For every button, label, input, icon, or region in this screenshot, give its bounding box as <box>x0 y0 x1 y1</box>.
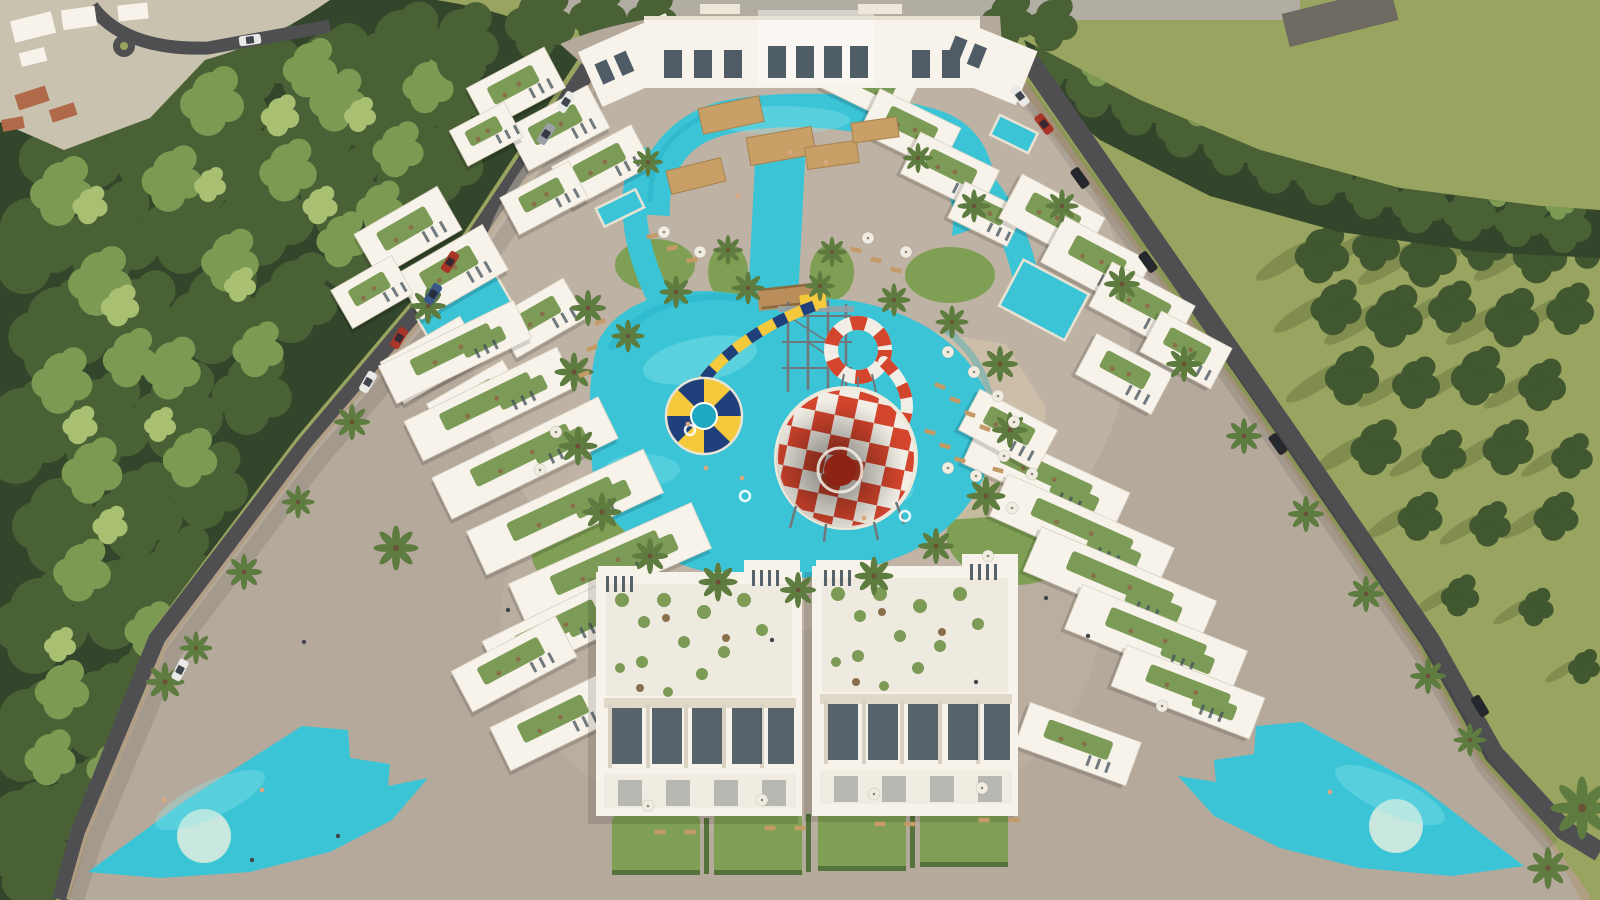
swimmer <box>686 422 691 427</box>
tower-slit <box>606 576 609 592</box>
sun-umbrella <box>968 366 980 378</box>
column <box>900 700 904 764</box>
tower-slit <box>622 576 625 592</box>
column <box>862 700 866 764</box>
palm-tree <box>1104 266 1140 302</box>
swimmer <box>162 798 167 803</box>
shrub <box>912 662 924 674</box>
sun-umbrella <box>756 794 768 806</box>
pedestrian <box>974 680 978 684</box>
palm-tree <box>982 346 1018 382</box>
window <box>692 708 722 764</box>
window <box>694 50 712 78</box>
palm-tree <box>282 486 315 519</box>
tower-slit <box>776 570 779 586</box>
lazy-river-channel <box>748 142 806 300</box>
sun-umbrella <box>658 226 670 238</box>
table <box>852 678 860 686</box>
roof-unit <box>858 4 902 14</box>
column <box>608 704 612 768</box>
column <box>938 700 942 764</box>
shrub <box>854 610 866 622</box>
swimmer <box>736 194 741 199</box>
sun-umbrella <box>862 232 874 244</box>
funnel-throat <box>691 403 717 429</box>
window <box>732 708 762 764</box>
palm-tree <box>958 190 991 223</box>
palm-tree <box>1166 346 1202 382</box>
tower-slit <box>978 564 981 580</box>
pedestrian <box>770 638 774 642</box>
window <box>724 50 742 78</box>
palm-tree <box>805 271 835 301</box>
hedge <box>806 814 811 872</box>
window <box>948 704 978 760</box>
sun-umbrella <box>900 246 912 258</box>
tower-slit <box>630 576 633 592</box>
window <box>908 704 938 760</box>
sun-lounger <box>905 822 916 827</box>
hedge <box>704 818 709 874</box>
palm-tree <box>633 147 663 177</box>
balcony-band <box>604 698 796 708</box>
shrub <box>615 593 629 607</box>
garden <box>905 247 995 303</box>
palm-tree <box>374 526 419 571</box>
sun-lounger <box>875 822 886 827</box>
table <box>722 634 730 642</box>
front-lawn <box>612 816 700 874</box>
swimmer <box>740 476 745 481</box>
roof-terrace <box>606 584 792 696</box>
shrub <box>638 616 650 628</box>
palm-tree <box>699 563 738 602</box>
palm-tree <box>632 538 668 574</box>
tower-slit <box>760 570 763 586</box>
townhouse-left <box>588 560 802 824</box>
swimmer <box>862 516 867 521</box>
shrub <box>696 668 708 680</box>
hedge <box>714 870 802 875</box>
sun-umbrella <box>1026 468 1038 480</box>
window <box>612 708 642 764</box>
window <box>768 708 794 764</box>
sun-lounger <box>685 830 696 835</box>
palm-tree <box>855 557 894 596</box>
shrub <box>718 646 730 658</box>
palm-tree <box>559 427 598 466</box>
tower-slit <box>614 576 617 592</box>
sun-umbrella <box>1006 502 1018 514</box>
column <box>824 700 828 764</box>
shrub <box>678 636 690 648</box>
blue-yellow-funnel <box>666 378 742 454</box>
hedge <box>920 862 1008 867</box>
sun-lounger <box>1009 818 1020 823</box>
swimmer <box>1328 790 1333 795</box>
pedestrian <box>250 858 254 862</box>
sun-umbrella <box>942 462 954 474</box>
resort-aerial-render <box>0 0 1600 900</box>
column <box>684 704 688 768</box>
palm-tree <box>903 143 933 173</box>
shrub <box>756 624 768 636</box>
table <box>878 608 886 616</box>
table <box>636 684 644 692</box>
shrub <box>663 687 673 697</box>
roof-terrace <box>822 578 1008 692</box>
shrub <box>953 587 967 601</box>
sun-umbrella <box>550 426 562 438</box>
hedge <box>818 866 906 871</box>
sun-umbrella <box>942 346 954 358</box>
palm-tree <box>226 554 262 590</box>
sun-umbrella <box>998 450 1010 462</box>
roundabout-island <box>120 42 128 50</box>
window <box>984 704 1010 760</box>
sun-lounger <box>765 826 776 831</box>
pedestrian <box>302 640 306 644</box>
tower-slit <box>840 570 843 586</box>
sun-umbrella <box>982 550 994 562</box>
funnel-mouth <box>824 454 856 486</box>
palm-tree <box>1410 658 1446 694</box>
balcony-band <box>820 694 1012 704</box>
sun-lounger <box>655 830 666 835</box>
palm-tree <box>334 404 370 440</box>
pedestrian <box>1044 596 1048 600</box>
pedestrian <box>506 608 510 612</box>
palm-tree <box>878 284 911 317</box>
shrub <box>879 681 889 691</box>
shrub <box>852 650 864 662</box>
palm-tree <box>713 235 743 265</box>
window <box>824 46 842 78</box>
palm-tree <box>1288 496 1324 532</box>
palm-tree <box>918 528 954 564</box>
table <box>662 614 670 622</box>
pedestrian <box>336 834 340 838</box>
window <box>850 46 868 78</box>
palm-tree <box>1226 418 1262 454</box>
window <box>912 50 930 78</box>
tower-slit <box>986 564 989 580</box>
roof-unit <box>700 4 740 14</box>
shrub <box>913 599 927 613</box>
tower-slit <box>824 570 827 586</box>
palm-tree <box>967 477 1006 516</box>
window <box>652 708 682 764</box>
shrub <box>615 663 625 673</box>
palm-tree <box>1348 576 1384 612</box>
sun-lounger <box>979 818 990 823</box>
palm-tree <box>180 632 213 665</box>
palm-tree <box>817 237 847 267</box>
palm-tree <box>1046 190 1079 223</box>
palm-tree <box>1527 847 1569 889</box>
palm-tree <box>583 493 622 532</box>
car-roof <box>246 36 255 44</box>
palm-tree <box>612 320 645 353</box>
swimmer <box>704 466 709 471</box>
tower-slit <box>970 564 973 580</box>
sun-umbrella <box>868 788 880 800</box>
palm-tree <box>1454 724 1487 757</box>
column <box>646 704 650 768</box>
palm-tree <box>780 572 816 608</box>
sun-umbrella <box>694 246 706 258</box>
tower-slit <box>832 570 835 586</box>
house <box>117 2 149 21</box>
shrub <box>657 593 671 607</box>
window <box>796 46 814 78</box>
window <box>868 704 898 760</box>
sun-umbrella <box>534 464 546 476</box>
tower-slit <box>994 564 997 580</box>
table <box>938 628 946 636</box>
shrub <box>697 605 711 619</box>
palm-tree <box>660 276 693 309</box>
shrub <box>894 630 906 642</box>
sun-umbrella <box>1008 416 1020 428</box>
palm-tree <box>936 306 969 339</box>
sun-lounger <box>795 826 806 831</box>
shrub <box>934 640 946 652</box>
sun-umbrella <box>970 470 982 482</box>
sun-umbrella <box>642 800 654 812</box>
shrub <box>972 618 984 630</box>
window <box>664 50 682 78</box>
swimmer <box>788 150 793 155</box>
pedestrian <box>1086 634 1090 638</box>
swimmer <box>260 788 265 793</box>
scene-canvas <box>0 0 1600 900</box>
shrub <box>831 587 845 601</box>
hedge <box>612 870 700 875</box>
sun-umbrella <box>992 390 1004 402</box>
swimmer <box>824 160 829 165</box>
window <box>828 704 858 760</box>
tower-slit <box>768 570 771 586</box>
parapet <box>644 16 980 20</box>
shrub <box>831 657 841 667</box>
tower-slit <box>848 570 851 586</box>
shrub <box>636 656 648 668</box>
column <box>722 704 726 768</box>
window <box>768 46 786 78</box>
sun-umbrella <box>1156 700 1168 712</box>
tower-slit <box>752 570 755 586</box>
palm-tree <box>732 272 765 305</box>
shrub <box>737 593 751 607</box>
sun-umbrella <box>976 782 988 794</box>
townhouse-right <box>804 554 1018 822</box>
